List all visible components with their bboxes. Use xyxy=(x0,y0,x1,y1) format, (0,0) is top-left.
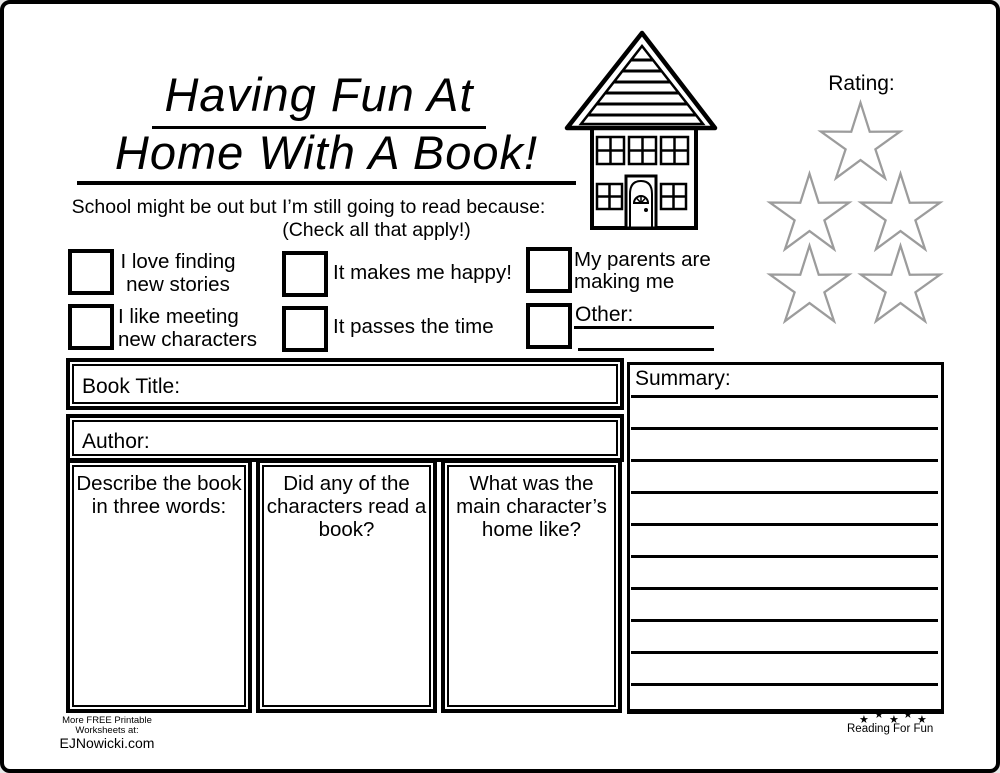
promo-block: More FREE Printable Worksheets at: EJNow… xyxy=(59,716,155,751)
author-field[interactable]: Author: xyxy=(66,414,624,462)
brand-star-icon: ★ xyxy=(874,710,884,721)
characters-read-label: Did any of the characters read a book? xyxy=(260,463,433,541)
summary-label: Summary: xyxy=(635,367,731,391)
title-line-2: Home With A Book! xyxy=(54,125,599,180)
reason-label-other: Other: xyxy=(575,303,633,326)
book-title-label: Book Title: xyxy=(82,375,180,399)
characters-read-field[interactable]: Did any of the characters read a book? xyxy=(256,459,437,713)
book-title-field[interactable]: Book Title: xyxy=(66,358,624,410)
checkbox-love-finding[interactable] xyxy=(68,249,114,295)
checkbox-passes-time[interactable] xyxy=(282,306,328,352)
reason-label: It passes the time xyxy=(333,315,494,338)
brand-name: Reading For Fun xyxy=(847,723,933,735)
subtitle: School might be out but I’m still going … xyxy=(56,196,561,219)
reason-label: I like meeting new characters xyxy=(118,305,257,351)
worksheet-page: Having Fun At Home With A Book! School m… xyxy=(0,0,1000,773)
subtitle-note: (Check all that apply!) xyxy=(224,219,529,242)
rating-star-4[interactable] xyxy=(766,242,853,325)
describe-book-label: Describe the book in three words: xyxy=(70,463,248,518)
rating-star-2[interactable] xyxy=(766,170,853,253)
author-label: Author: xyxy=(82,430,150,454)
brand-star-icon: ★ xyxy=(903,710,913,721)
checkbox-other[interactable] xyxy=(526,303,572,349)
describe-book-field[interactable]: Describe the book in three words: xyxy=(66,459,252,713)
other-write-line-2[interactable] xyxy=(578,348,714,351)
house-icon xyxy=(562,29,719,232)
checkbox-makes-me-happy[interactable] xyxy=(282,251,328,297)
summary-write-lines xyxy=(631,366,938,686)
rating-label: Rating: xyxy=(824,72,899,96)
rating-star-5[interactable] xyxy=(857,242,944,325)
character-home-field[interactable]: What was the main character’s home like? xyxy=(441,459,622,713)
checkbox-like-meeting[interactable] xyxy=(68,304,114,350)
title-line-1: Having Fun At xyxy=(104,67,534,122)
reason-label: My parents are making me xyxy=(574,249,711,293)
character-home-label: What was the main character’s home like? xyxy=(445,463,618,541)
title-underline-2 xyxy=(77,181,576,185)
promo-site: EJNowicki.com xyxy=(59,736,155,751)
rating-star-3[interactable] xyxy=(857,170,944,253)
reason-label: It makes me happy! xyxy=(333,261,512,284)
other-write-line-1[interactable] xyxy=(574,326,714,329)
checkbox-parents-making[interactable] xyxy=(526,247,572,293)
reason-label: I love finding new stories xyxy=(114,250,242,296)
